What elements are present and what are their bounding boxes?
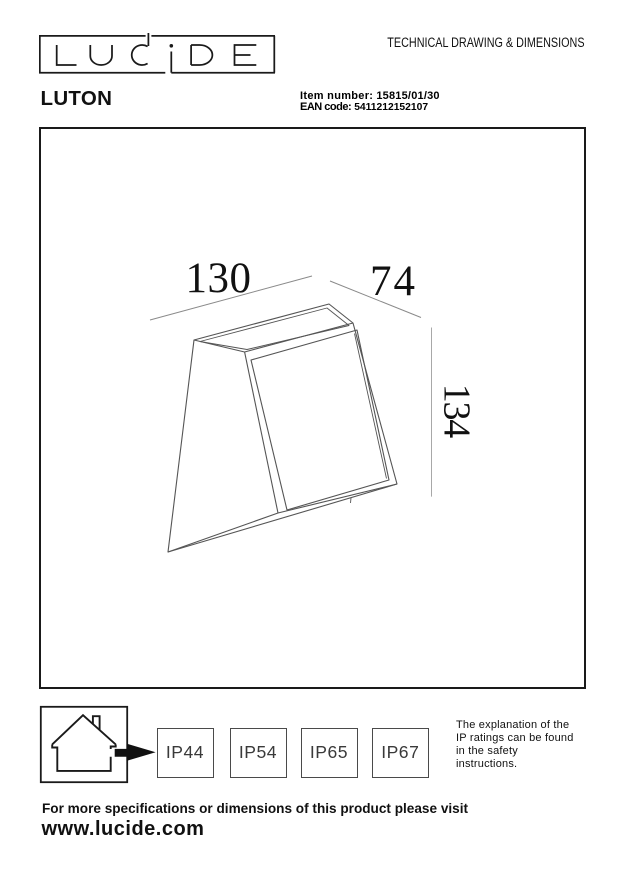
svg-text:130: 130 (186, 255, 252, 302)
svg-text:74: 74 (370, 258, 417, 305)
svg-text:134: 134 (436, 384, 478, 439)
